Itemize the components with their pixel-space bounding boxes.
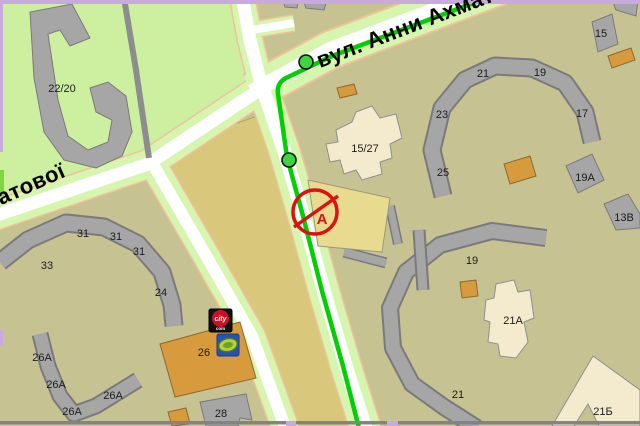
map-canvas[interactable]: 22/20 33 31 31 31 24 26А 26А 26А 26А 26 …: [0, 0, 640, 426]
citycom-logo-text: city: [214, 316, 227, 323]
transit-stop-dot[interactable]: [299, 55, 313, 69]
label-21: 21: [477, 68, 489, 80]
label-28: 28: [215, 408, 227, 420]
map-border-bottom: [0, 421, 640, 425]
label-26a: 26А: [46, 379, 66, 391]
label-26a: 26А: [62, 406, 82, 418]
label-13v: 13В: [614, 212, 634, 224]
label-31: 31: [77, 228, 89, 240]
map-boundary-left: [0, 0, 3, 152]
label-26: 26: [198, 347, 210, 359]
label-31: 31: [110, 231, 122, 243]
citycom-logo-subtext: com: [216, 326, 225, 331]
supermarket-logo[interactable]: [217, 334, 239, 356]
label-21a: 21А: [503, 315, 523, 327]
map-boundary-top: [0, 0, 640, 4]
label-19: 19: [534, 67, 546, 79]
label-22-20: 22/20: [48, 83, 76, 95]
label-23: 23: [436, 109, 448, 121]
edge-purple-strip: [0, 330, 3, 346]
label-15-27: 15/27: [351, 143, 379, 155]
label-15: 15: [595, 28, 607, 40]
label-24: 24: [155, 287, 167, 299]
label-26a: 26А: [32, 352, 52, 364]
edge-purple-bit: [387, 421, 398, 426]
label-17: 17: [576, 108, 588, 120]
label-25: 25: [437, 167, 449, 179]
label-21: 21: [452, 389, 464, 401]
label-21b: 21Б: [593, 406, 612, 418]
citycom-logo[interactable]: city com: [209, 309, 232, 332]
building-arm: [419, 230, 423, 290]
marker-letter: А: [317, 211, 328, 228]
edge-purple-bit: [286, 421, 296, 426]
label-33: 33: [41, 260, 53, 272]
label-19a: 19А: [575, 172, 595, 184]
label-19: 19: [466, 255, 478, 267]
label-31: 31: [133, 246, 145, 258]
transit-stop-dot[interactable]: [282, 153, 296, 167]
building-orange-ring: [460, 280, 478, 298]
label-26a: 26А: [103, 390, 123, 402]
